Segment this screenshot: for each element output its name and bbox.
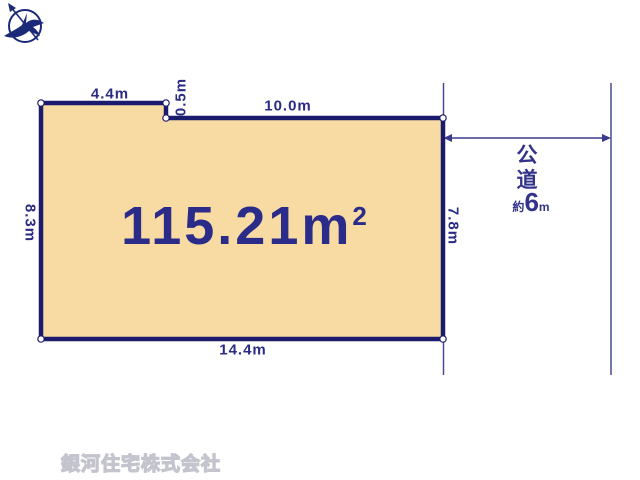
road-width-label: 約 6 m: [512, 189, 549, 215]
vertex-marker: [163, 100, 169, 106]
dimension-notch-edge: 0.5m: [173, 78, 190, 116]
vertex-marker: [440, 115, 446, 121]
dimension-top-right-edge: 10.0m: [264, 98, 312, 115]
dimension-left-edge: 8.3m: [22, 204, 39, 242]
land-plot-diagram: 4.4m 0.5m 10.0m 8.3m 7.8m 14.4m 115.21m2…: [0, 0, 640, 480]
company-name-watermark: 銀河住宅株式会社: [61, 449, 221, 476]
road-name-label: 公 道: [517, 143, 538, 193]
dimension-top-left-edge: 4.4m: [91, 86, 129, 103]
area-exponent: 2: [352, 201, 366, 231]
road-width-arrow: [444, 134, 612, 142]
dimension-bottom-edge: 14.4m: [219, 342, 267, 359]
vertex-marker: [38, 336, 44, 342]
road-width-value: 6: [524, 189, 538, 215]
dimension-right-edge: 7.8m: [445, 207, 462, 245]
road-width-unit: m: [539, 200, 550, 214]
road-name-char-1: 公: [517, 143, 538, 168]
vertex-marker: [440, 336, 446, 342]
compass-bird-logo: [0, 0, 48, 50]
plot-area-label: 115.21m2: [121, 199, 367, 253]
area-value: 115.21: [121, 196, 301, 256]
road-width-prefix: 約: [512, 198, 524, 215]
area-unit: m: [301, 196, 352, 256]
vertex-marker: [38, 100, 44, 106]
vertex-marker: [163, 115, 169, 121]
